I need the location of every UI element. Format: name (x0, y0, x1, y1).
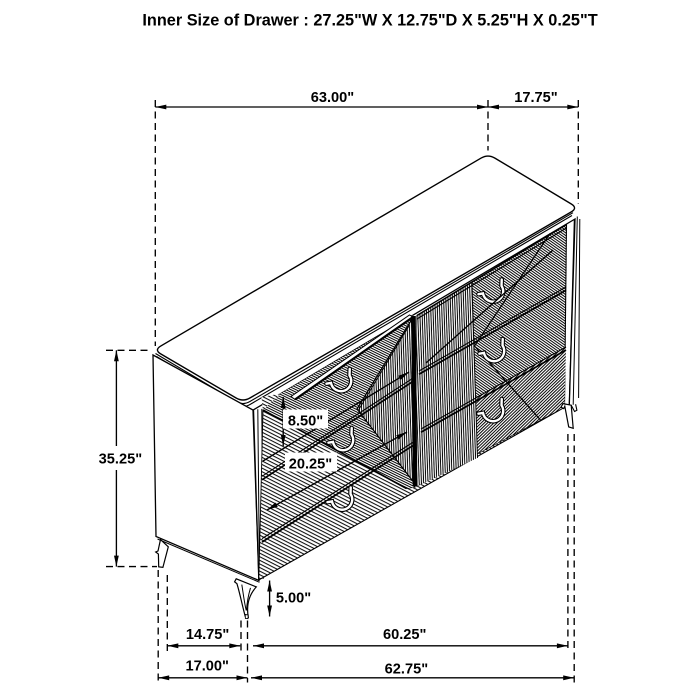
svg-text:Inner Size of Drawer : 27.25"W: Inner Size of Drawer : 27.25"W X 12.75"D… (142, 12, 597, 30)
svg-text:17.00": 17.00" (185, 659, 228, 675)
svg-text:63.00": 63.00" (311, 90, 354, 106)
svg-text:5.00": 5.00" (276, 591, 311, 607)
svg-text:14.75": 14.75" (186, 627, 229, 643)
svg-text:60.25": 60.25" (383, 627, 426, 643)
svg-text:17.75": 17.75" (514, 90, 557, 106)
svg-text:62.75": 62.75" (385, 662, 428, 678)
svg-text:35.25": 35.25" (99, 452, 142, 468)
svg-text:8.50": 8.50" (288, 414, 323, 430)
svg-text:20.25": 20.25" (289, 457, 332, 473)
